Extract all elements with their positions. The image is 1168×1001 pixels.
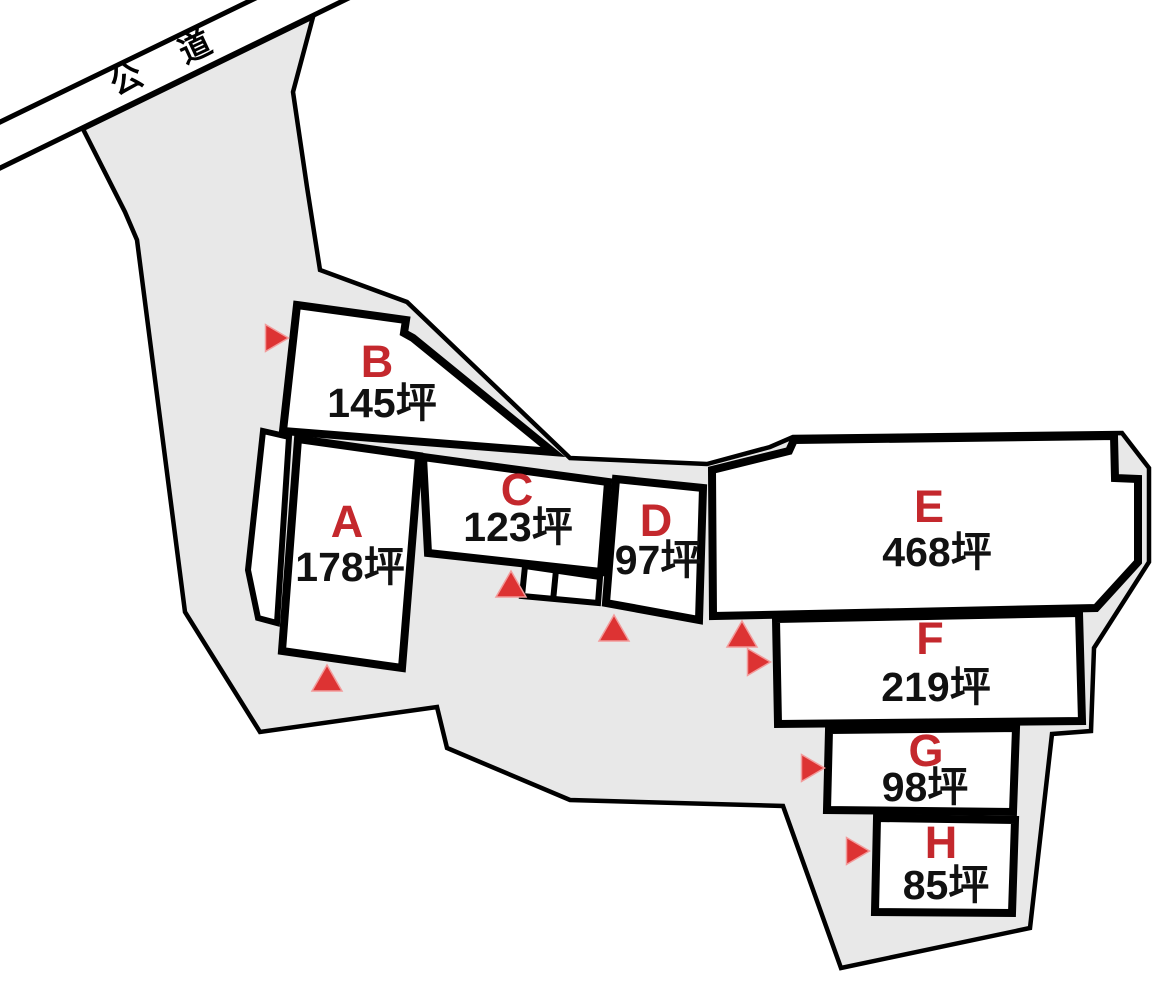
plot-H-area-label: 85坪 bbox=[903, 862, 990, 908]
plot-C-area-label: 123坪 bbox=[463, 504, 572, 550]
lot-subdivision-map: 公 道 A178坪B145坪C123坪D97坪E468坪F219坪G98坪H85… bbox=[0, 0, 1168, 1001]
plot-A-area-label: 178坪 bbox=[295, 544, 404, 590]
plot-E-letter: E bbox=[914, 481, 944, 532]
plot-E-area-label: 468坪 bbox=[882, 529, 991, 575]
plot-B-area-label: 145坪 bbox=[327, 380, 436, 426]
plot-G-area-label: 98坪 bbox=[882, 764, 969, 810]
plot-H-letter: H bbox=[925, 817, 958, 868]
plot-F-area-label: 219坪 bbox=[881, 664, 990, 710]
plot-C-annex-divider bbox=[553, 570, 556, 601]
plot-F-letter: F bbox=[916, 613, 944, 664]
plot-D-area-label: 97坪 bbox=[615, 537, 702, 583]
site-plan-page: 公 道 A178坪B145坪C123坪D97坪E468坪F219坪G98坪H85… bbox=[0, 0, 1168, 1001]
plot-A-letter: A bbox=[331, 496, 364, 547]
